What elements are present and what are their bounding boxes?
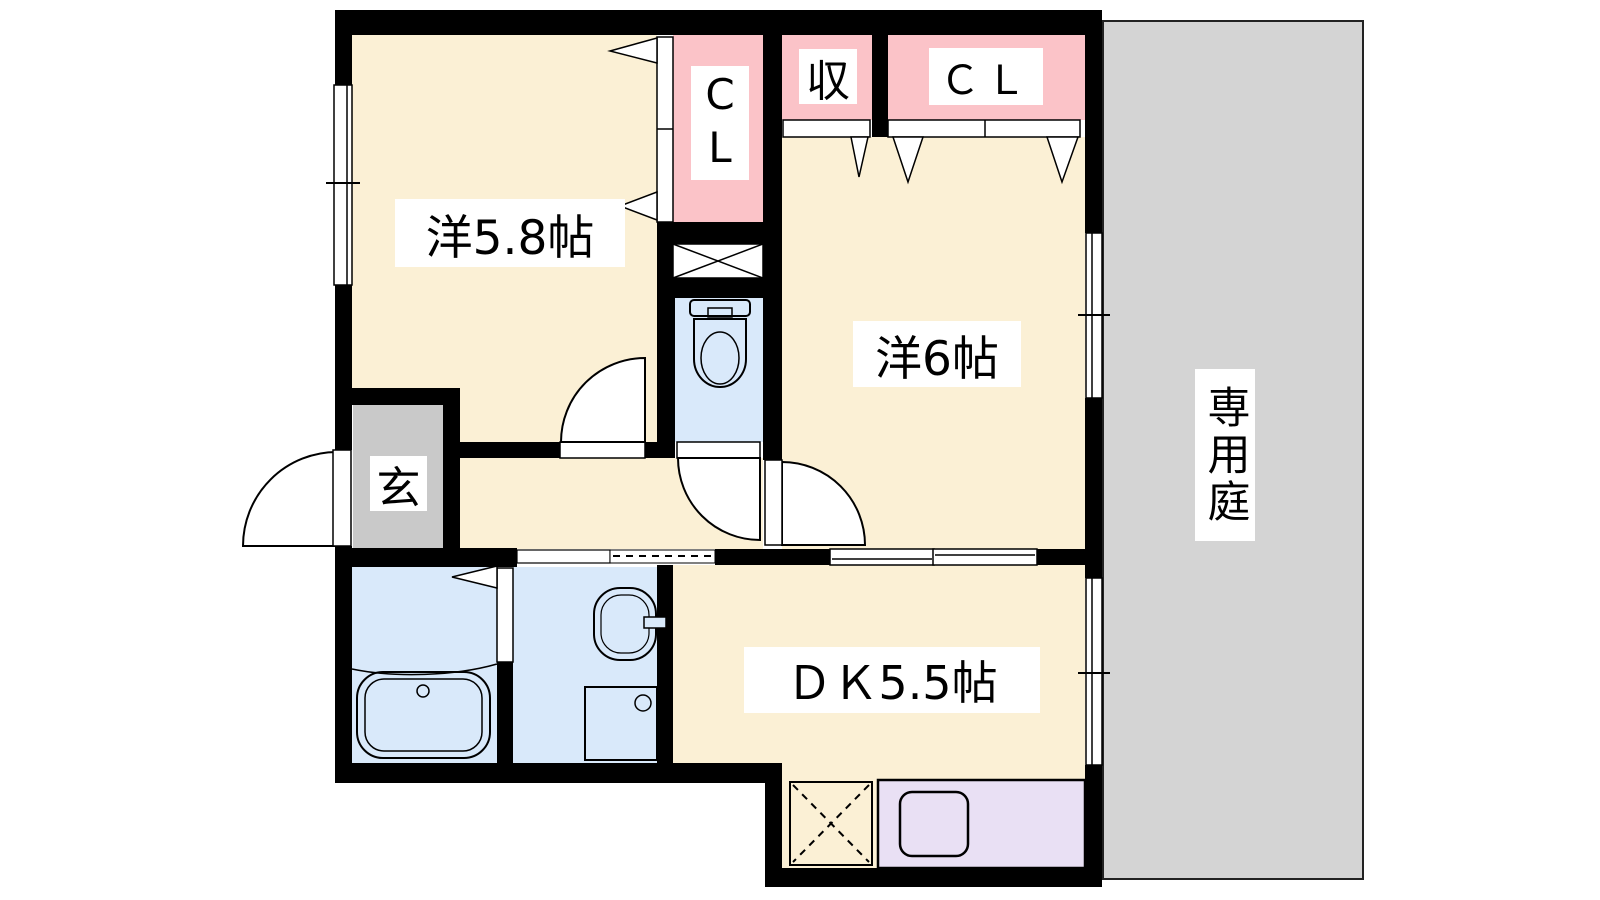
west6-dk-sliding-door — [830, 549, 1037, 565]
room-label-storage: 収 — [799, 49, 857, 104]
room-label-closet-left: CL — [691, 66, 749, 180]
room-label-closet-right: ＣＬ — [929, 48, 1043, 105]
pipe-space-icon — [673, 244, 763, 278]
floor-plan: 洋5.8帖 洋6帖 ＤＫ5.5帖 玄 CL 収 ＣＬ 専用庭 — [0, 0, 1600, 900]
room-label-west58: 洋5.8帖 — [395, 199, 625, 267]
room-label-entrance: 玄 — [370, 456, 427, 511]
washroom-sliding-door — [517, 550, 715, 563]
room-label-west6: 洋6帖 — [853, 321, 1021, 387]
kitchen-counter — [878, 780, 1085, 868]
refrigerator-space-icon — [790, 782, 872, 865]
room-label-dk: ＤＫ5.5帖 — [744, 647, 1040, 713]
bathroom-floor — [352, 567, 497, 763]
entrance-door — [243, 450, 351, 546]
floor-plan-drawing — [0, 0, 1600, 900]
room-label-garden: 専用庭 — [1195, 369, 1255, 541]
